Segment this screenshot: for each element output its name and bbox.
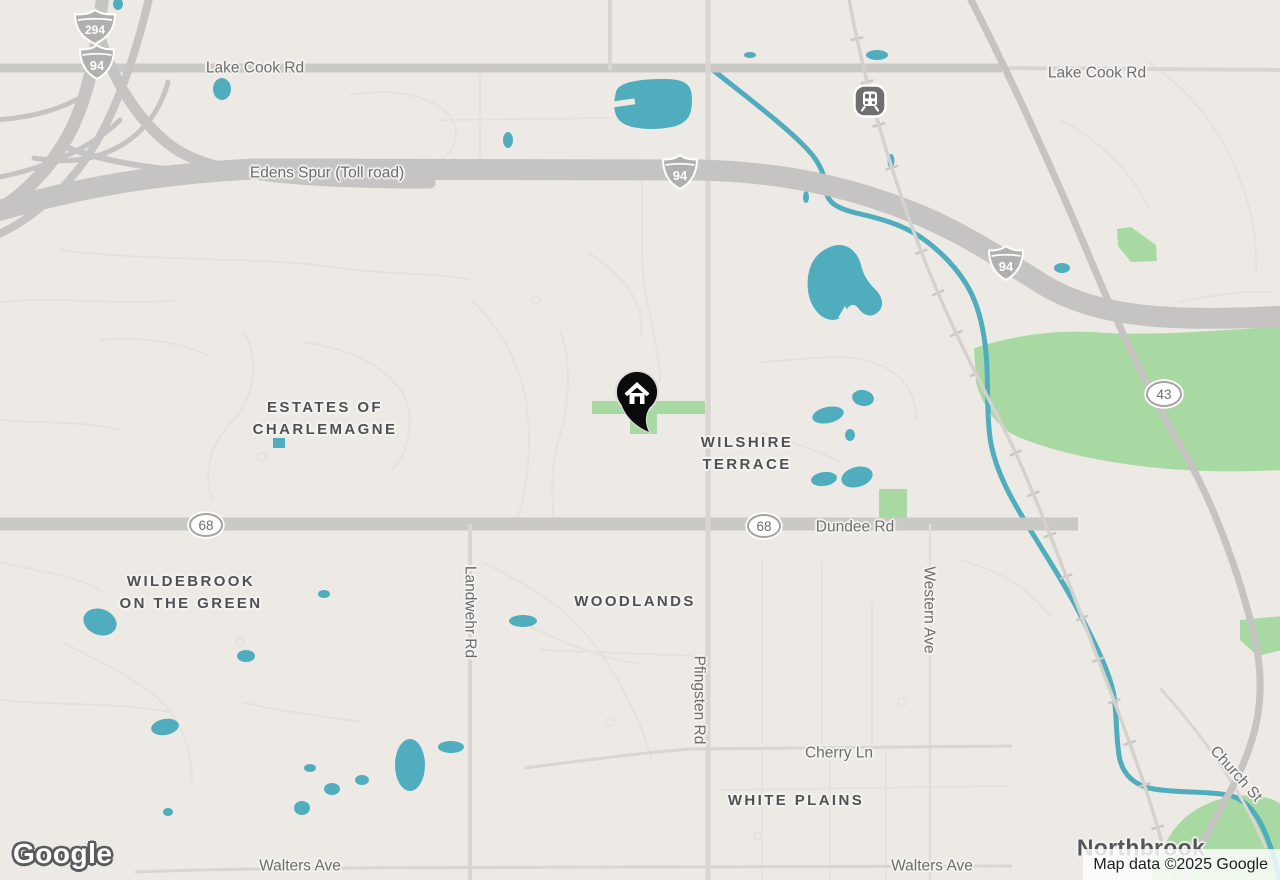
park-strip-dundee [879, 489, 907, 522]
road-label-pfingsten-rd: Pfingsten Rd [690, 656, 707, 745]
shield-i294: 294 [73, 9, 117, 45]
map-attribution: Map data ©2025 Google [1083, 849, 1280, 880]
neighborhood-label-wilshire-terrace: WILSHIRE TERRACE [701, 432, 794, 476]
shield-i94-east: 94 [987, 245, 1025, 281]
road-label-western-ave: Western Ave [920, 566, 937, 653]
neighborhood-label-woodlands: WOODLANDS [574, 591, 696, 613]
train-station[interactable] [853, 84, 887, 123]
shield-i94-nw: 94 [78, 44, 116, 80]
road-label-walters-ave-east: Walters Ave [891, 857, 973, 874]
neighborhood-label-estates-of-charlemagne: ESTATES OF CHARLEMAGNE [253, 397, 398, 441]
road-label-edens-spur: Edens Spur (Toll road) [250, 164, 404, 181]
minor-roads [0, 62, 1272, 880]
neighborhood-label-white-plains: WHITE PLAINS [728, 790, 864, 812]
shield-route-43: 43 [1144, 379, 1184, 409]
shield-route-68-east: 68 [745, 512, 783, 540]
shield-route-68-west: 68 [187, 511, 225, 539]
road-label-lake-cook-rd-west: Lake Cook Rd [206, 59, 304, 76]
edens-spur [0, 169, 1280, 318]
train-icon [853, 84, 887, 118]
road-label-dundee-rd: Dundee Rd [816, 518, 894, 535]
shield-i94-center: 94 [661, 154, 699, 190]
house-icon [611, 369, 665, 437]
water-bodies [80, 0, 1070, 816]
home-marker[interactable] [611, 369, 665, 442]
road-label-lake-cook-rd-east: Lake Cook Rd [1048, 64, 1146, 81]
cherry-ln [525, 746, 1012, 768]
small-park-northeast [1117, 227, 1157, 262]
road-label-walters-ave-west: Walters Ave [259, 857, 341, 874]
map-canvas[interactable]: Lake Cook Rd Lake Cook Rd Edens Spur (To… [0, 0, 1280, 880]
road-label-landwehr-rd: Landwehr Rd [461, 566, 478, 658]
road-label-cherry-ln: Cherry Ln [805, 744, 873, 761]
google-logo[interactable]: Google [13, 838, 112, 870]
neighborhood-label-wildebrook-on-the-green: WILDEBROOK ON THE GREEN [120, 571, 263, 615]
